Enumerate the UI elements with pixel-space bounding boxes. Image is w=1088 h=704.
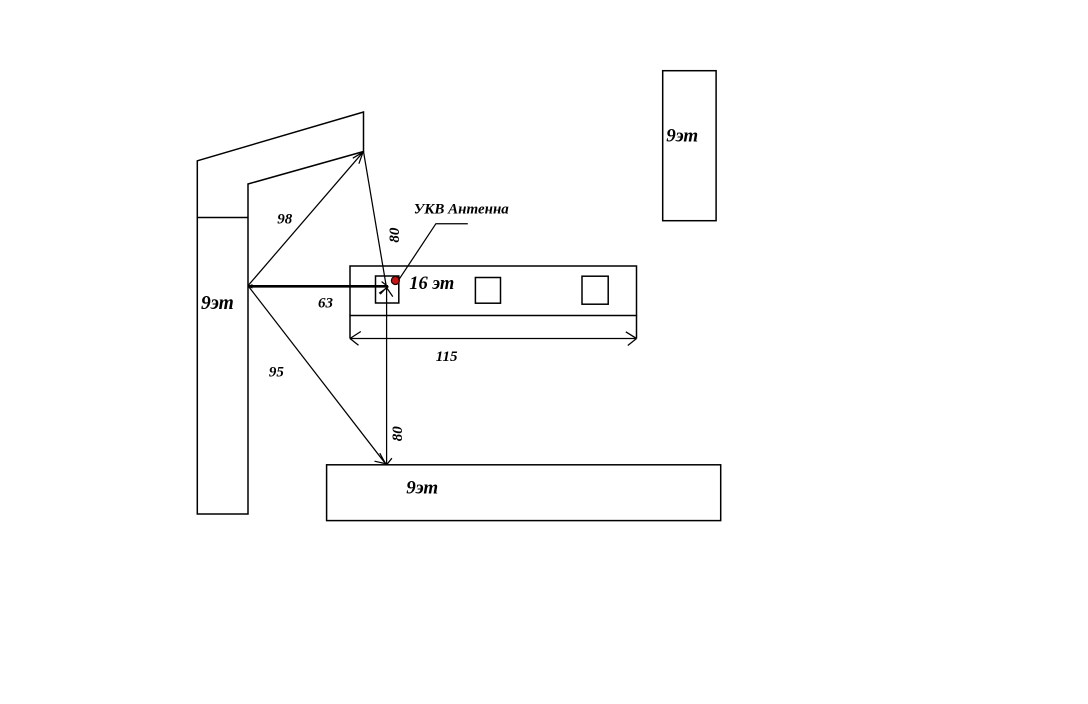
svg-text:9эт: 9эт <box>666 125 698 146</box>
svg-text:9эт: 9эт <box>406 478 438 499</box>
svg-text:80: 80 <box>387 227 403 243</box>
svg-text:9эт: 9эт <box>201 293 234 314</box>
svg-text:63: 63 <box>318 296 334 312</box>
svg-text:115: 115 <box>436 349 458 365</box>
svg-text:95: 95 <box>269 364 285 380</box>
svg-text:80: 80 <box>390 426 406 442</box>
svg-text:98: 98 <box>277 211 293 227</box>
svg-text:УКВ Антенна: УКВ Антенна <box>414 201 509 217</box>
svg-text:16 эт: 16 эт <box>409 274 454 294</box>
